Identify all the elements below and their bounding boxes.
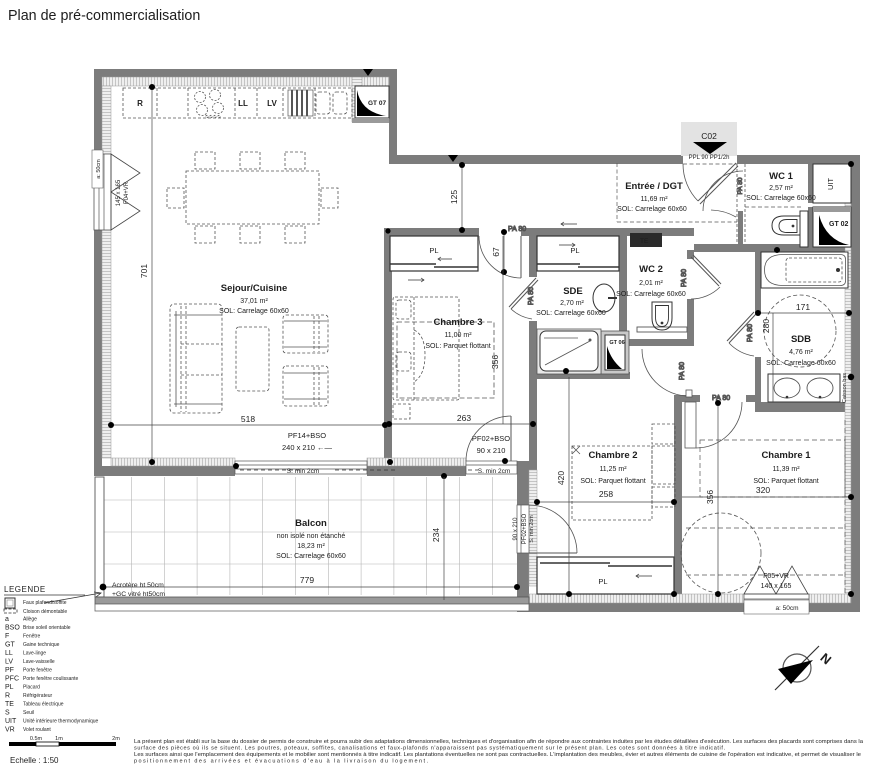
svg-text:2m: 2m <box>112 736 120 742</box>
svg-text:F04+VR: F04+VR <box>124 181 130 204</box>
svg-text:11,25 m²: 11,25 m² <box>599 466 627 473</box>
svg-text:SOL: Carrelage 60x60: SOL: Carrelage 60x60 <box>766 360 836 367</box>
svg-text:LL: LL <box>238 99 248 108</box>
svg-text:356: 356 <box>490 355 500 369</box>
svg-text:SOL: Parquet flottant: SOL: Parquet flottant <box>753 478 818 485</box>
svg-text:Faux plafond/soffite: Faux plafond/soffite <box>23 600 67 606</box>
svg-text:GT 07: GT 07 <box>368 100 386 107</box>
svg-text:Lave-linge: Lave-linge <box>23 651 46 657</box>
svg-text:Lave-vaisselle: Lave-vaisselle <box>23 659 55 665</box>
svg-text:GT 06: GT 06 <box>609 340 624 346</box>
svg-text:140 x 165: 140 x 165 <box>761 583 792 590</box>
svg-text:non isolé non étanché: non isolé non étanché <box>277 533 346 540</box>
svg-text:2,70 m²: 2,70 m² <box>560 300 584 307</box>
svg-text:TE: TE <box>640 238 649 245</box>
svg-text:37,01 m²: 37,01 m² <box>240 298 268 305</box>
svg-text:Cloison démontable: Cloison démontable <box>23 609 67 615</box>
svg-text:PL: PL <box>429 246 438 255</box>
svg-text:SOL: Carrelage 60x60: SOL: Carrelage 60x60 <box>219 308 289 315</box>
svg-text:779: 779 <box>300 575 314 585</box>
svg-text:Plan de pré-commercialisation: Plan de pré-commercialisation <box>8 8 200 24</box>
svg-text:PA 80: PA 80 <box>712 395 730 402</box>
svg-text:90 x 210: 90 x 210 <box>477 446 506 455</box>
svg-text:Placard: Placard <box>23 685 40 691</box>
svg-text:Fenêtre: Fenêtre <box>23 634 40 640</box>
svg-text:Porte fenêtre: Porte fenêtre <box>23 668 52 674</box>
svg-text:WC 1: WC 1 <box>769 171 793 182</box>
svg-text:F: F <box>5 633 9 640</box>
svg-text:11,39 m²: 11,39 m² <box>772 466 800 473</box>
svg-text:PL: PL <box>5 684 14 691</box>
svg-text:a: 50cm: a: 50cm <box>96 159 102 179</box>
svg-text:Chambre 2: Chambre 2 <box>588 450 637 461</box>
svg-text:PL: PL <box>598 577 607 586</box>
svg-text:LV: LV <box>267 99 277 108</box>
svg-text:PA 80: PA 80 <box>737 177 744 194</box>
svg-text:Allège: Allège <box>23 617 37 623</box>
svg-text:PF14+BSO: PF14+BSO <box>288 431 326 440</box>
svg-text:Porte fenêtre coulissante: Porte fenêtre coulissante <box>23 676 79 682</box>
svg-text:PA 80: PA 80 <box>679 362 686 380</box>
svg-text:S: S <box>5 710 10 717</box>
svg-text:PA 80: PA 80 <box>747 324 754 342</box>
svg-text:UIT: UIT <box>826 178 835 191</box>
svg-text:C02: C02 <box>701 131 717 141</box>
svg-text:SOL: Parquet flottant: SOL: Parquet flottant <box>425 343 490 350</box>
svg-text:F05+VR: F05+VR <box>763 573 789 580</box>
svg-text:SOL: Carrelage 60x60: SOL: Carrelage 60x60 <box>536 310 606 317</box>
svg-text:PA 80: PA 80 <box>528 287 535 305</box>
svg-text:PA 80: PA 80 <box>508 226 526 233</box>
svg-text:SOL: Carrelage 60x60: SOL: Carrelage 60x60 <box>617 206 687 213</box>
svg-text:Caisson bas: Caisson bas <box>842 373 848 404</box>
svg-text:320: 320 <box>756 485 770 495</box>
svg-text:LL: LL <box>5 650 13 657</box>
svg-text:Volet roulant: Volet roulant <box>23 727 51 733</box>
svg-text:67: 67 <box>491 247 501 257</box>
svg-text:PL: PL <box>570 246 579 255</box>
svg-text:2,57 m²: 2,57 m² <box>769 185 793 192</box>
svg-text:BSO: BSO <box>5 625 20 632</box>
svg-text:surface des pièces où ils se s: surface des pièces où ils se situent. Le… <box>134 746 725 752</box>
svg-text:SDE: SDE <box>563 286 583 297</box>
svg-text:171: 171 <box>796 302 810 312</box>
svg-text:Entrée / DGT: Entrée / DGT <box>625 181 683 192</box>
svg-text:420: 420 <box>556 471 566 485</box>
svg-text:PF02+BSO: PF02+BSO <box>472 434 510 443</box>
svg-text:11,69 m²: 11,69 m² <box>640 196 668 203</box>
svg-text:Les surfaces ainsi que l'empla: Les surfaces ainsi que l'emplacement des… <box>134 752 861 758</box>
svg-text:UIT: UIT <box>5 718 17 725</box>
svg-text:Tableau électrique: Tableau électrique <box>23 702 64 708</box>
svg-text:TE: TE <box>5 701 14 708</box>
svg-text:LEGENDE: LEGENDE <box>4 585 46 594</box>
svg-text:Chambre 1: Chambre 1 <box>761 450 811 461</box>
svg-text:SDB: SDB <box>791 334 811 345</box>
svg-text:701: 701 <box>139 264 149 278</box>
svg-text:4,76 m²: 4,76 m² <box>789 349 813 356</box>
svg-text:a: a <box>5 616 9 623</box>
svg-text:Acrotère ht 50cm: Acrotère ht 50cm <box>112 582 164 589</box>
svg-text:+GC vitré ht50cm: +GC vitré ht50cm <box>112 591 165 598</box>
svg-text:11,00 m²: 11,00 m² <box>444 332 472 339</box>
svg-text:GT 02: GT 02 <box>829 221 849 228</box>
svg-text:S. min 2cm: S. min 2cm <box>529 515 535 543</box>
svg-text:18,23 m²: 18,23 m² <box>297 543 325 550</box>
svg-text:La présent plan est établi sur: La présent plan est établi sur la base d… <box>134 739 864 745</box>
svg-text:Balcon: Balcon <box>295 518 327 529</box>
svg-text:2,01 m²: 2,01 m² <box>639 280 663 287</box>
svg-text:240 x 210 ←—: 240 x 210 ←— <box>282 443 333 452</box>
svg-text:518: 518 <box>241 414 255 424</box>
svg-text:1m: 1m <box>55 736 63 742</box>
svg-text:Réfrigérateur: Réfrigérateur <box>23 693 53 699</box>
svg-text:Unité intérieure thermodynamiq: Unité intérieure thermodynamique <box>23 719 99 725</box>
svg-text:PA 80: PA 80 <box>681 269 688 287</box>
svg-text:PF02+BSO: PF02+BSO <box>522 513 528 544</box>
svg-text:R: R <box>5 693 10 700</box>
svg-text:PPL 90 PP1/2h: PPL 90 PP1/2h <box>689 155 730 161</box>
svg-text:SOL: Carrelage 60x60: SOL: Carrelage 60x60 <box>616 291 686 298</box>
svg-text:90 x 210: 90 x 210 <box>513 517 519 541</box>
svg-text:Brise soleil orientable: Brise soleil orientable <box>23 625 71 631</box>
svg-text:LV: LV <box>5 659 13 666</box>
svg-text:PFC: PFC <box>5 676 19 683</box>
svg-text:R: R <box>137 99 143 108</box>
svg-text:Echelle : 1:50: Echelle : 1:50 <box>10 756 59 765</box>
svg-text:VR: VR <box>5 727 15 734</box>
svg-text:Seuil: Seuil <box>23 710 34 716</box>
svg-text:SOL: Parquet flottant: SOL: Parquet flottant <box>580 478 645 485</box>
svg-text:a: 50cm: a: 50cm <box>775 605 798 612</box>
svg-text:SOL: Carrelage 60x60: SOL: Carrelage 60x60 <box>276 553 346 560</box>
svg-text:145 x 165: 145 x 165 <box>116 179 122 206</box>
svg-text:0.5m: 0.5m <box>30 736 43 742</box>
svg-text:WC 2: WC 2 <box>639 264 663 275</box>
svg-text:Sejour/Cuisine: Sejour/Cuisine <box>221 283 288 294</box>
svg-text:PF: PF <box>5 667 14 674</box>
svg-text:258: 258 <box>599 489 613 499</box>
svg-text:234: 234 <box>431 528 441 542</box>
svg-text:Gaine technique: Gaine technique <box>23 642 60 648</box>
svg-text:125: 125 <box>449 190 459 204</box>
svg-text:Chambre 3: Chambre 3 <box>433 317 482 328</box>
svg-text:S. min 2cm: S. min 2cm <box>478 468 511 475</box>
svg-text:280: 280 <box>761 319 771 333</box>
svg-text:GT: GT <box>5 642 15 649</box>
svg-text:SOL: Carrelage 60x60: SOL: Carrelage 60x60 <box>746 195 816 202</box>
svg-text:263: 263 <box>457 413 471 423</box>
svg-text:S. min 2cm: S. min 2cm <box>287 468 320 475</box>
